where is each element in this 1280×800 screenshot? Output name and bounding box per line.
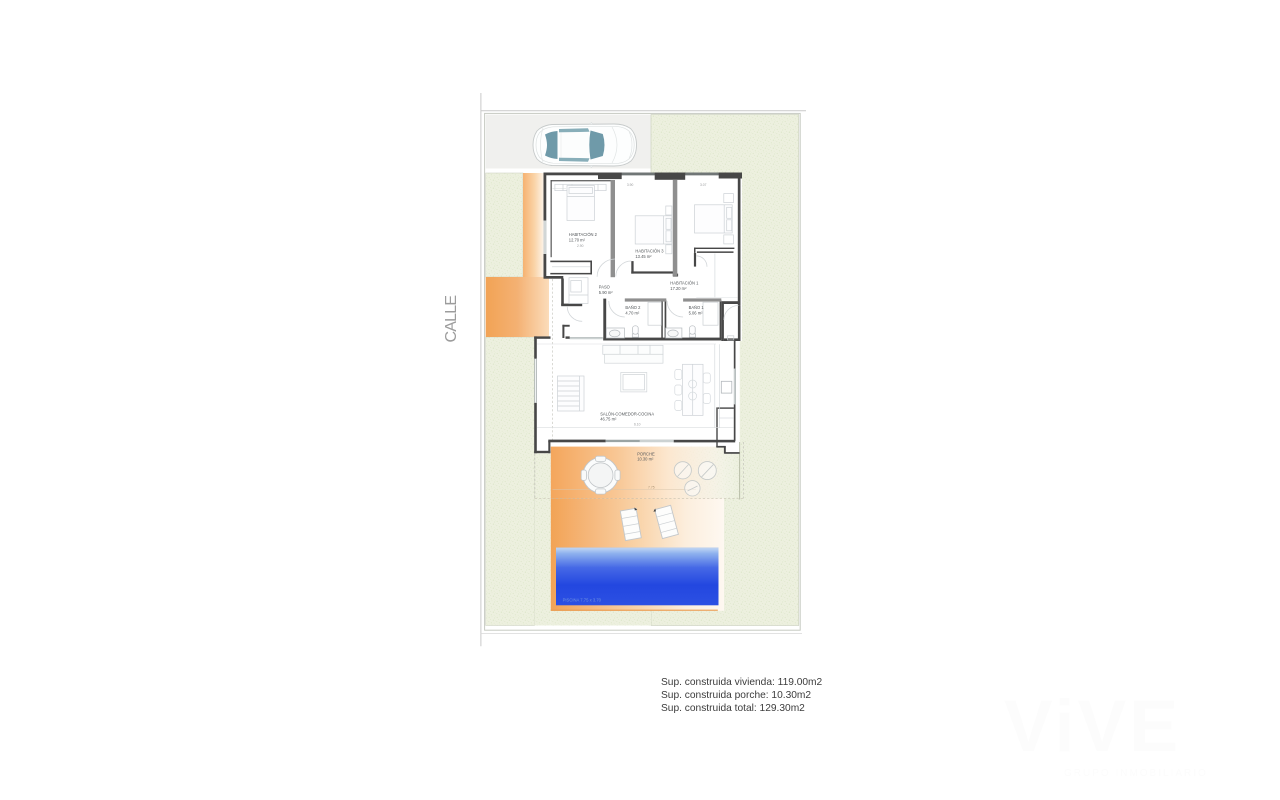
svg-text:GRUPO INMOBILIARIO: GRUPO INMOBILIARIO <box>1064 768 1208 779</box>
svg-text:ViVE: ViVE <box>1004 686 1181 767</box>
svg-text:17.20 m²: 17.20 m² <box>670 286 687 291</box>
svg-text:3.90: 3.90 <box>627 183 634 187</box>
svg-text:10.30 m²: 10.30 m² <box>637 457 654 462</box>
svg-text:5.06 m²: 5.06 m² <box>689 310 704 315</box>
svg-text:Sup. construida porche: 10.30m: Sup. construida porche: 10.30m2 <box>661 690 811 701</box>
svg-text:PASO: PASO <box>599 285 610 290</box>
svg-text:SALÓN-COMEDOR-COCINA: SALÓN-COMEDOR-COCINA <box>600 411 654 416</box>
svg-text:Sup. construida total: 129.30m: Sup. construida total: 129.30m2 <box>661 703 805 714</box>
svg-text:Sup. construida vivienda: 119.: Sup. construida vivienda: 119.00m2 <box>661 677 823 688</box>
svg-text:HABITACIÓN 3: HABITACIÓN 3 <box>635 248 664 253</box>
svg-text:5.90 m²: 5.90 m² <box>599 290 614 295</box>
svg-text:CALLE: CALLE <box>443 296 460 343</box>
svg-text:12.70 m²: 12.70 m² <box>569 237 586 242</box>
svg-text:2.90: 2.90 <box>577 244 584 248</box>
svg-text:3.07: 3.07 <box>700 183 707 187</box>
svg-text:13.45 m²: 13.45 m² <box>635 254 652 259</box>
svg-text:46.75 m²: 46.75 m² <box>600 417 617 422</box>
svg-text:BAÑO 1: BAÑO 1 <box>689 305 705 310</box>
svg-text:7.75: 7.75 <box>648 485 655 489</box>
svg-text:BAÑO 2: BAÑO 2 <box>625 305 641 310</box>
svg-text:4.70 m²: 4.70 m² <box>625 310 640 315</box>
svg-text:PISCINA 7.75 x 3.70: PISCINA 7.75 x 3.70 <box>563 598 602 603</box>
svg-text:6.10: 6.10 <box>634 422 641 426</box>
svg-text:HABITACIÓN 2: HABITACIÓN 2 <box>569 232 598 237</box>
svg-text:HABITACIÓN 1: HABITACIÓN 1 <box>670 281 699 286</box>
